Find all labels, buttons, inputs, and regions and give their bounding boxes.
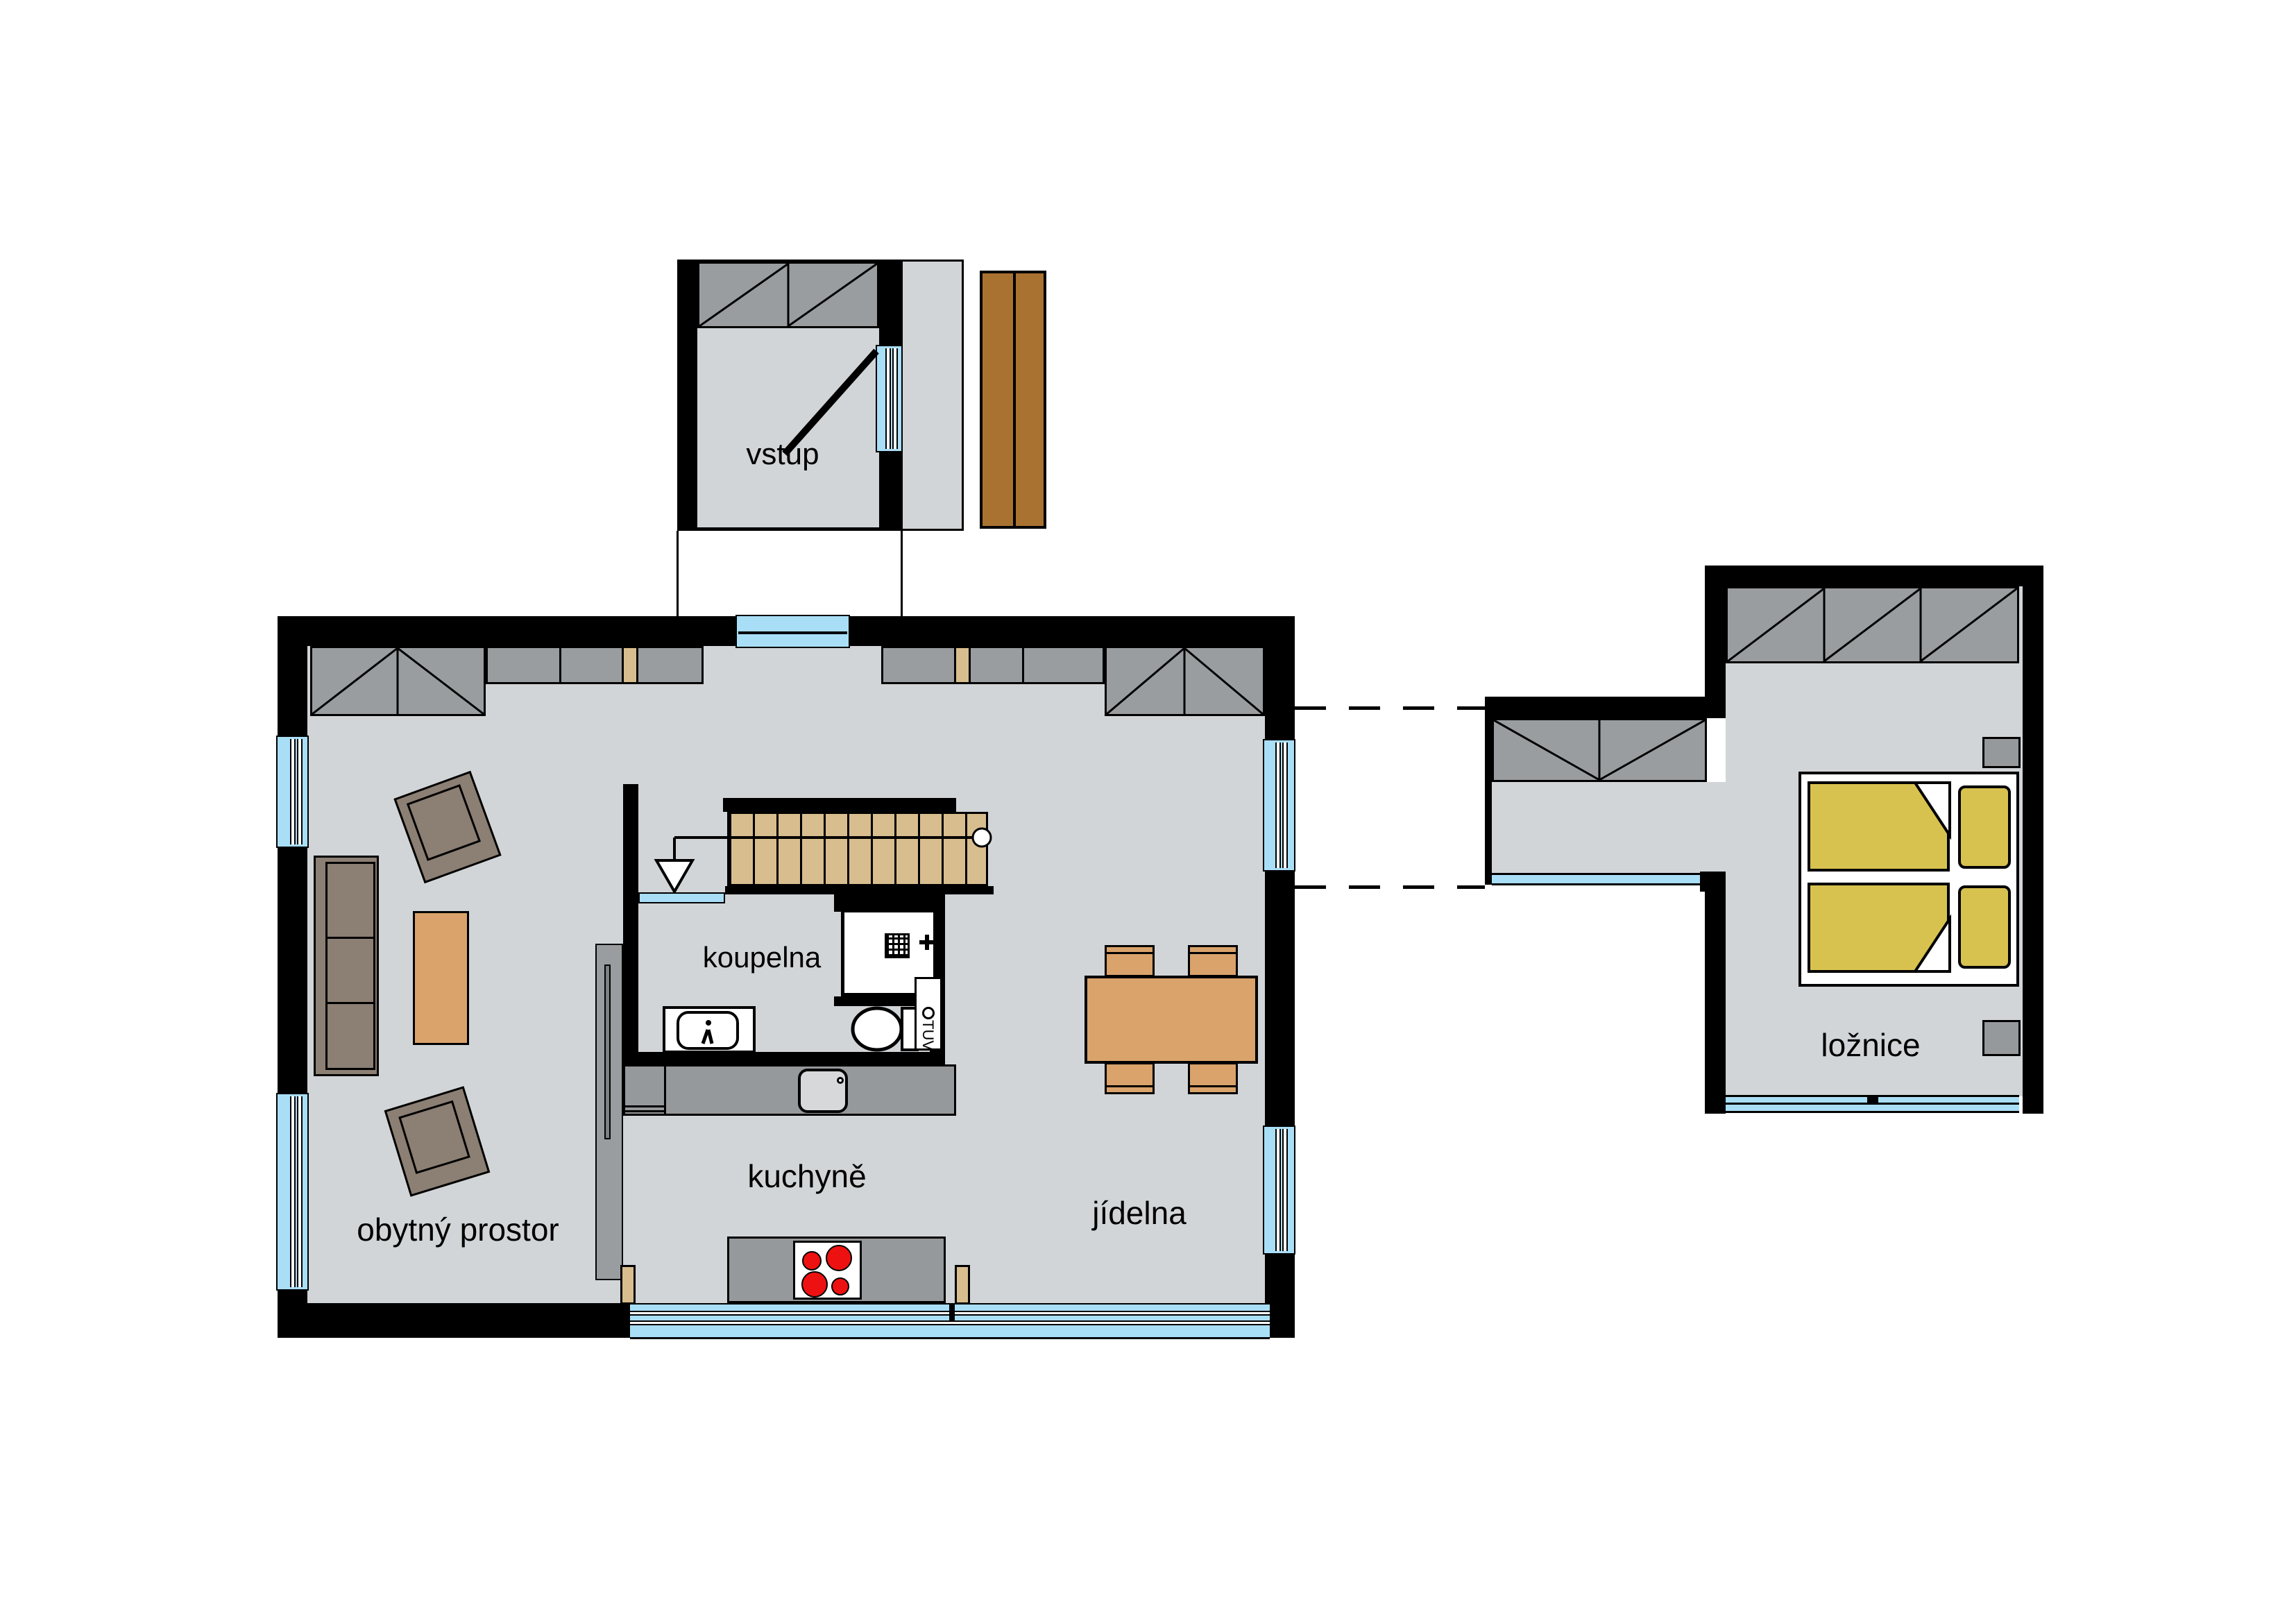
- entrance-wall-right-lower: [879, 452, 903, 531]
- burner-icon: [831, 1277, 849, 1295]
- bedroom-wardrobe: [1726, 586, 2019, 663]
- wardrobe-hatch-icon: [1107, 648, 1263, 714]
- kitchen-tap-icon: [837, 1077, 844, 1084]
- corridor-floor: [1492, 782, 1726, 873]
- shower-drain-icon: [885, 933, 910, 958]
- kitchen-counter: [623, 1064, 956, 1116]
- corridor-window: [1492, 873, 1700, 885]
- burner-icon: [801, 1271, 828, 1298]
- bedroom-wall-left-lower: [1705, 884, 1726, 1114]
- floor-plan-canvas: vstup: [0, 0, 2296, 1623]
- room-label-bathroom: koupelna: [703, 941, 821, 974]
- living-window-upper: [276, 736, 309, 848]
- bathroom-sink-unit: [663, 1006, 756, 1053]
- main-wall-bottom-left: [278, 1303, 630, 1338]
- kitchen-sink: [798, 1069, 848, 1113]
- entrance-door-mat: [980, 271, 1046, 529]
- entrance-wardrobe: [697, 260, 879, 328]
- dining-chair: [1188, 945, 1238, 977]
- glazing-post-right: [955, 1265, 970, 1305]
- sofa: [314, 856, 379, 1076]
- dining-window-upper: [1263, 739, 1295, 872]
- room-label-dining: jídelna: [1092, 1194, 1187, 1232]
- room-label-bedroom: ložnice: [1821, 1026, 1920, 1064]
- stairs-top-wall: [723, 798, 956, 812]
- cooktop: [793, 1241, 862, 1300]
- nightstand-bottom: [1982, 1020, 2021, 1056]
- water-heater-label: TUV: [919, 1014, 937, 1056]
- bed-pillow-top: [1958, 785, 2011, 869]
- bedroom-wall-top: [1705, 566, 2043, 586]
- water-heater: TUV: [915, 977, 942, 1051]
- burner-icon: [826, 1245, 852, 1271]
- corridor-wall-top: [1485, 697, 1726, 718]
- toilet-icon: [849, 1006, 921, 1052]
- corner-wardrobe-right: [1105, 646, 1265, 716]
- projection-line-left: [677, 531, 679, 616]
- entrance-porch: [903, 260, 964, 531]
- room-label-entrance: vstup: [746, 437, 819, 472]
- bedroom-wall-right: [2023, 566, 2043, 1114]
- stairs-direction-arrow-icon: [652, 826, 999, 902]
- bedroom-window-bottom: [1726, 1095, 2019, 1113]
- room-label-kitchen: kuchyně: [747, 1157, 866, 1195]
- dining-chair: [1105, 945, 1155, 977]
- dashed-link-bottom: [1295, 885, 1485, 889]
- glazing-mullion: [949, 1303, 955, 1322]
- dining-chair: [1105, 1062, 1155, 1094]
- glazing-post-left: [620, 1265, 636, 1305]
- bed-fold-icon: [1908, 915, 1953, 974]
- entrance-door: [876, 345, 903, 452]
- corridor-wall-left: [1485, 718, 1492, 885]
- entrance-wall-left: [677, 260, 697, 531]
- cabinet-row-right: [881, 646, 1105, 684]
- coffee-table: [413, 911, 469, 1045]
- partition-wall: [623, 784, 638, 1063]
- living-window-lower: [276, 1093, 309, 1291]
- dining-window-lower: [1263, 1125, 1295, 1255]
- bathroom-door: [638, 892, 725, 903]
- bedroom-wall-left-upper: [1705, 566, 1726, 697]
- nightstand-top: [1982, 737, 2021, 768]
- wardrobe-hatch-icon: [1728, 588, 2017, 661]
- main-entry-door: [735, 615, 850, 648]
- dashed-link-top: [1295, 706, 1485, 710]
- entrance-wall-right-upper: [879, 260, 903, 345]
- projection-line-right: [901, 531, 903, 616]
- cabinet-row-left: [486, 646, 704, 684]
- sink-basin-icon: [665, 1009, 753, 1051]
- corridor-wardrobe: [1492, 718, 1707, 782]
- south-glazing: [630, 1303, 1270, 1339]
- wardrobe-hatch-icon: [1494, 720, 1705, 780]
- wardrobe-hatch-icon: [699, 264, 877, 326]
- dishwasher-lines: [625, 1105, 664, 1107]
- bed-pillow-bottom: [1958, 885, 2011, 969]
- wardrobe-hatch-icon: [312, 648, 484, 714]
- tv-sideboard: [595, 944, 623, 1280]
- dining-table: [1085, 976, 1258, 1064]
- bed-fold-icon: [1908, 780, 1953, 840]
- dining-chair: [1188, 1062, 1238, 1094]
- burner-icon: [802, 1251, 822, 1271]
- corner-wardrobe-left: [310, 646, 486, 716]
- room-label-living: obytný prostor: [357, 1211, 559, 1248]
- shower-faucet-icon-2: [925, 935, 929, 950]
